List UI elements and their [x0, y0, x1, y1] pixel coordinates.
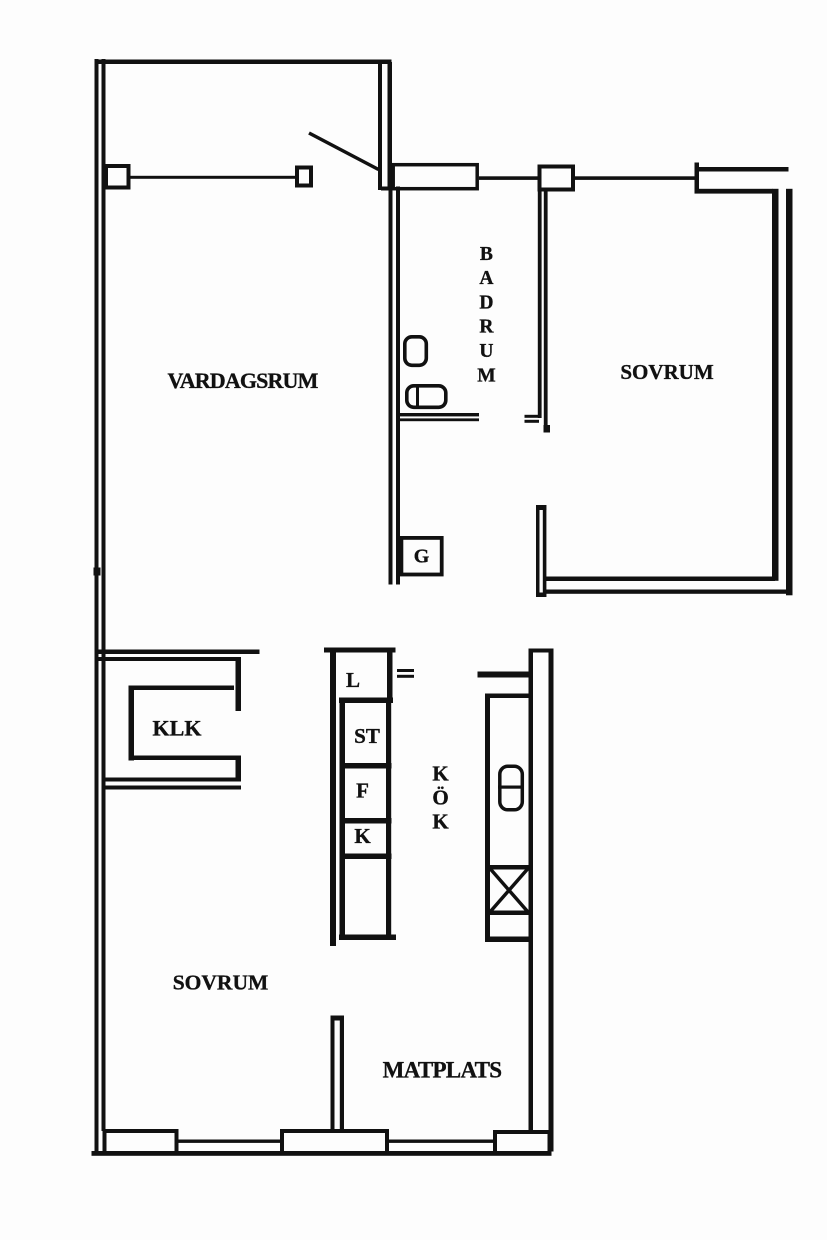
svg-text:L: L: [346, 668, 360, 692]
svg-text:MATPLATS: MATPLATS: [383, 1058, 502, 1083]
svg-text:B: B: [480, 244, 493, 265]
svg-text:F: F: [356, 779, 369, 803]
svg-text:G: G: [414, 546, 430, 568]
svg-text:Ö: Ö: [432, 786, 448, 810]
svg-text:VARDAGSRUM: VARDAGSRUM: [168, 368, 319, 393]
svg-text:U: U: [479, 341, 493, 362]
svg-text:SOVRUM: SOVRUM: [173, 971, 269, 995]
svg-text:A: A: [479, 268, 493, 289]
svg-text:K: K: [432, 810, 449, 834]
svg-text:M: M: [477, 365, 495, 386]
svg-text:K: K: [354, 824, 371, 848]
svg-text:ST: ST: [354, 724, 380, 748]
svg-text:SOVRUM: SOVRUM: [620, 360, 714, 384]
svg-text:K: K: [432, 762, 449, 786]
svg-text:D: D: [479, 292, 493, 313]
svg-text:R: R: [479, 317, 494, 338]
svg-text:KLK: KLK: [153, 716, 202, 741]
